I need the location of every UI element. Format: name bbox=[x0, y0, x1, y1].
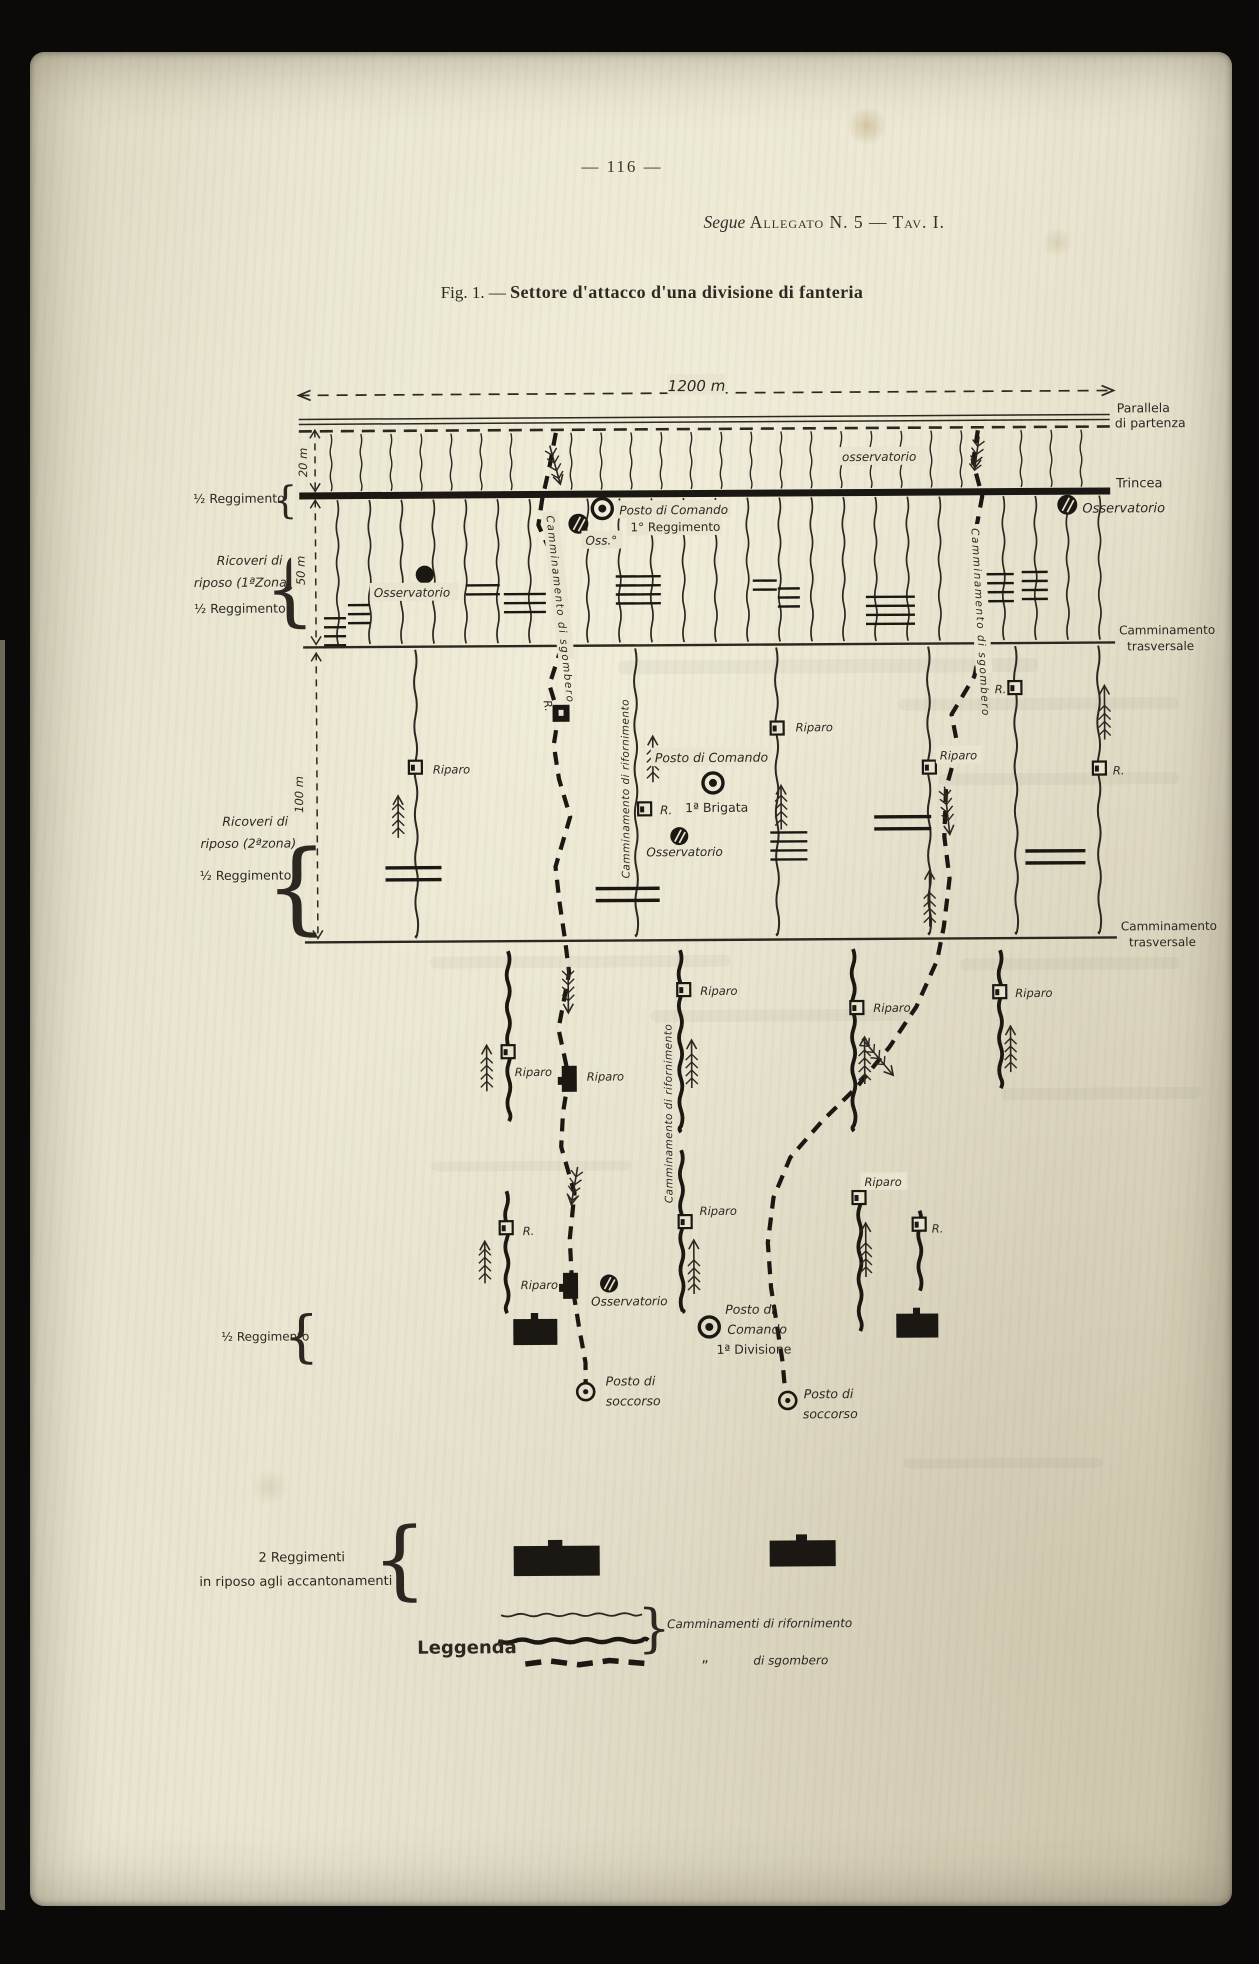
shelter-icon bbox=[1008, 681, 1021, 694]
barracks-icon bbox=[513, 1313, 557, 1345]
jump-off-sap-line bbox=[1080, 430, 1082, 487]
diagram-label: 2 Reggimenti bbox=[258, 1550, 345, 1566]
jump-off-sap-line bbox=[330, 434, 332, 491]
jump-off-sap-line bbox=[450, 434, 452, 491]
trincea-line bbox=[299, 491, 1110, 496]
svg-text:1° Reggimento: 1° Reggimento bbox=[630, 520, 720, 535]
supply-trench-line bbox=[505, 1191, 509, 1313]
shelter-icon-filled bbox=[558, 1066, 577, 1092]
communication-trench-line bbox=[874, 497, 877, 641]
direction-arrow bbox=[686, 1040, 698, 1088]
diagram-label: Parallela bbox=[1117, 400, 1170, 415]
jump-off-sap-line bbox=[480, 433, 482, 490]
diagram-label: di partenza bbox=[1115, 415, 1186, 430]
communication-trench-line bbox=[1098, 496, 1101, 640]
shelter-icon bbox=[923, 761, 936, 774]
svg-text:„: „ bbox=[701, 1650, 708, 1666]
jump-off-sap-line bbox=[810, 431, 812, 488]
diagram-label: 1ª Divisione bbox=[716, 1341, 791, 1356]
diagram-label: R. bbox=[995, 682, 1007, 696]
direction-arrow bbox=[1004, 1026, 1016, 1072]
svg-text:Riparo: Riparo bbox=[521, 1278, 558, 1292]
diagram-label: Riparo bbox=[936, 746, 983, 764]
svg-text:R.: R. bbox=[995, 682, 1007, 696]
svg-text:½ Reggimento: ½ Reggimento bbox=[200, 867, 292, 883]
svg-text:trasversale: trasversale bbox=[1127, 639, 1194, 653]
diagram-label: Oss.° bbox=[581, 530, 623, 548]
legend-thick-wavy-line bbox=[498, 1639, 648, 1643]
jump-off-sap-line bbox=[420, 434, 422, 491]
grouping-brace: { bbox=[372, 1510, 427, 1610]
jump-off-sap-line bbox=[960, 430, 962, 487]
jump-off-sap-line bbox=[750, 432, 752, 489]
svg-text:Ricoveri di: Ricoveri di bbox=[222, 814, 288, 829]
diagram-label: 1200 m bbox=[667, 374, 726, 395]
svg-text:Parallela: Parallela bbox=[1117, 400, 1170, 415]
communication-trench-line bbox=[414, 650, 418, 938]
diagram-label: R. bbox=[523, 1224, 535, 1238]
svg-text:1ª Brigata: 1ª Brigata bbox=[685, 800, 748, 815]
jump-off-sap-line bbox=[390, 434, 392, 491]
svg-text:Riparo: Riparo bbox=[700, 1204, 737, 1218]
supply-trench-line bbox=[858, 1191, 862, 1331]
svg-text:Osservatorio: Osservatorio bbox=[646, 845, 722, 859]
communication-trench-line bbox=[1034, 496, 1037, 640]
svg-text:Riparo: Riparo bbox=[587, 1069, 624, 1083]
supply-trench-line bbox=[679, 950, 683, 1132]
diagram-label: Riparo bbox=[700, 984, 737, 998]
diagram-label: R. bbox=[1113, 763, 1125, 777]
jump-off-sap-line bbox=[570, 433, 572, 490]
direction-arrow bbox=[1098, 685, 1110, 739]
communication-trench-line bbox=[496, 499, 499, 643]
svg-text:Oss.°: Oss.° bbox=[585, 533, 617, 547]
diagram-label: Riparo bbox=[873, 1001, 910, 1015]
diagram-label: 20 m bbox=[293, 445, 311, 479]
jump-off-sap-line bbox=[510, 433, 512, 490]
page-bleedthrough bbox=[431, 1160, 631, 1171]
svg-text:Trincea: Trincea bbox=[1115, 476, 1162, 491]
svg-text:Riparo: Riparo bbox=[515, 1065, 552, 1079]
svg-text:Camminamento: Camminamento bbox=[1121, 919, 1217, 934]
diagram-label: Riparo bbox=[860, 1172, 907, 1190]
supply-trench-line bbox=[680, 1150, 684, 1312]
diagram-label: Riparo bbox=[587, 1069, 624, 1083]
diagram-label: Riparo bbox=[515, 1065, 552, 1079]
command-post-icon bbox=[703, 773, 723, 793]
diagram-label: Riparo bbox=[1015, 986, 1052, 1000]
svg-text:Posto di Comando: Posto di Comando bbox=[619, 503, 728, 518]
jump-off-sap-line bbox=[1020, 430, 1022, 487]
diagram-label: Posto di bbox=[804, 1386, 854, 1401]
jump-off-sap-line bbox=[780, 431, 782, 488]
svg-text:½ Reggimento: ½ Reggimento bbox=[194, 601, 286, 617]
diagram-label: R. bbox=[660, 803, 672, 817]
aid-post-icon bbox=[577, 1383, 594, 1400]
command-post-icon bbox=[592, 499, 612, 519]
shelter-icon bbox=[850, 1001, 863, 1014]
diagram-label: in riposo agli accantonamenti bbox=[199, 1574, 392, 1590]
svg-text:Posto di: Posto di bbox=[804, 1386, 854, 1401]
diagram-content: {{{{{}1200 mParalleladi partenzaosservat… bbox=[192, 371, 1221, 1671]
svg-text:R.: R. bbox=[1113, 763, 1125, 777]
svg-text:Riparo: Riparo bbox=[940, 748, 977, 762]
diagram-label: R. bbox=[541, 699, 556, 712]
diagram-label: osservatorio bbox=[838, 447, 927, 466]
shelter-icon bbox=[679, 1215, 692, 1228]
diagram-label: Posto di Comando bbox=[651, 747, 771, 766]
diagram-label: di sgombero bbox=[753, 1653, 828, 1667]
communication-trench-line bbox=[1066, 496, 1069, 640]
svg-text:soccorso: soccorso bbox=[606, 1393, 661, 1408]
page-bleedthrough bbox=[1001, 1087, 1201, 1100]
shelter-icon bbox=[409, 761, 422, 774]
shelter-icon bbox=[500, 1221, 513, 1234]
svg-text:R.: R. bbox=[660, 803, 672, 817]
command-post-icon bbox=[699, 1317, 719, 1337]
svg-text:Camminamento di rifornimento: Camminamento di rifornimento bbox=[662, 1024, 675, 1204]
diagram-label: Posto di bbox=[606, 1373, 656, 1388]
direction-arrow bbox=[924, 871, 936, 927]
diagram-label: Camminamento di rifornimento bbox=[662, 1024, 675, 1204]
observatory-icon bbox=[1057, 495, 1077, 515]
diagram-label: Osservatorio bbox=[591, 1294, 667, 1308]
diagram-label: Osservatorio bbox=[1082, 501, 1165, 517]
aid-post-icon bbox=[779, 1392, 796, 1409]
svg-text:soccorso: soccorso bbox=[803, 1406, 858, 1421]
shelter-icon bbox=[852, 1191, 865, 1204]
jump-off-sap-line bbox=[690, 432, 692, 489]
page-bleedthrough bbox=[939, 772, 1179, 785]
diagram-label: Riparo bbox=[796, 720, 833, 734]
jump-off-sap-line bbox=[660, 432, 662, 489]
communication-trench-line bbox=[1002, 496, 1005, 640]
supply-trench-line bbox=[851, 949, 855, 1131]
diagram-label: Ricoveri di bbox=[217, 553, 283, 568]
diagram-label: Camminamento bbox=[1119, 623, 1215, 638]
diagram-label: Camminamento bbox=[1121, 919, 1217, 934]
camminamento-trasversale-line bbox=[305, 937, 1117, 942]
supply-trench-line bbox=[507, 951, 511, 1121]
jump-off-sap-line bbox=[630, 432, 632, 489]
svg-text:Posto di: Posto di bbox=[725, 1302, 775, 1317]
diagram-label: „ bbox=[701, 1650, 708, 1666]
diagram-label: soccorso bbox=[803, 1406, 858, 1421]
barracks-icon bbox=[514, 1540, 600, 1577]
shelter-icon bbox=[771, 721, 784, 734]
diagram-label: 1ª Brigata bbox=[685, 800, 748, 815]
observatory-icon bbox=[670, 827, 688, 845]
communication-trench-line bbox=[746, 498, 749, 642]
jump-off-sap-line bbox=[720, 432, 722, 489]
direction-arrow bbox=[479, 1241, 491, 1283]
diagram-label: Leggenda bbox=[417, 1637, 517, 1659]
shelter-icon-filled bbox=[559, 1273, 578, 1299]
svg-text:Riparo: Riparo bbox=[1015, 986, 1052, 1000]
svg-text:Osservatorio: Osservatorio bbox=[374, 586, 450, 600]
communication-trench-line bbox=[810, 497, 813, 641]
diagram-label: 50 m bbox=[291, 554, 309, 588]
communication-trench-line bbox=[400, 500, 403, 644]
diagram-label: Camminamento di sgombero bbox=[542, 511, 580, 705]
svg-text:½ Reggimento: ½ Reggimento bbox=[221, 1329, 309, 1344]
svg-text:Comando: Comando bbox=[727, 1321, 787, 1336]
diagram-label: Riparo bbox=[700, 1204, 737, 1218]
diagram-label: ½ Reggimento bbox=[221, 1329, 309, 1344]
direction-arrow bbox=[481, 1045, 493, 1091]
observatory-icon bbox=[416, 566, 434, 584]
camminamento-trasversale-line bbox=[303, 642, 1115, 647]
communication-trench-line bbox=[842, 497, 845, 641]
communication-trench-line bbox=[464, 499, 467, 643]
diagram-label: Camminamenti di rifornimento bbox=[667, 1616, 852, 1631]
jump-off-sap-line bbox=[600, 433, 602, 490]
page-bleedthrough bbox=[650, 1009, 910, 1023]
svg-text:1ª Divisione: 1ª Divisione bbox=[716, 1341, 791, 1356]
svg-text:½ Reggimento: ½ Reggimento bbox=[193, 491, 285, 507]
legend-dashed-line bbox=[525, 1660, 644, 1665]
supply-trench-line bbox=[999, 950, 1003, 1088]
parallela-di-partenza-line bbox=[299, 419, 1110, 424]
svg-text:Leggenda: Leggenda bbox=[417, 1637, 517, 1659]
page-bleedthrough bbox=[903, 1458, 1103, 1469]
direction-arrow bbox=[775, 785, 787, 829]
barracks-icon bbox=[896, 1308, 938, 1338]
page-bleedthrough bbox=[430, 955, 730, 969]
diagram-label: trasversale bbox=[1127, 639, 1194, 653]
diagram-label: Riparo bbox=[521, 1278, 558, 1292]
diagram-label: Camminamento di sgombero bbox=[967, 524, 995, 718]
svg-text:Camminamenti di rifornimento: Camminamenti di rifornimento bbox=[667, 1616, 852, 1631]
svg-text:Camminamento di rifornimento: Camminamento di rifornimento bbox=[619, 699, 632, 879]
communication-trench-line bbox=[634, 648, 638, 936]
barracks-icon bbox=[770, 1534, 836, 1566]
communication-trench-line bbox=[618, 498, 621, 642]
svg-text:R.: R. bbox=[541, 699, 556, 712]
svg-text:riposo (1ªZona): riposo (1ªZona) bbox=[194, 574, 292, 590]
diagram-label: ½ Reggimento bbox=[193, 491, 285, 507]
direction-arrow bbox=[688, 1240, 700, 1294]
observatory-icon bbox=[600, 1275, 618, 1293]
diagram-label: Osservatorio bbox=[370, 582, 459, 601]
communication-trench-line bbox=[778, 498, 781, 642]
shelter-icon bbox=[993, 985, 1006, 998]
svg-text:1200 m: 1200 m bbox=[668, 377, 726, 395]
diagram-label: Riparo bbox=[433, 762, 470, 776]
diagram-label: Posto di Comando bbox=[615, 500, 731, 519]
page-bleedthrough bbox=[898, 697, 1178, 711]
shelter-icon bbox=[1093, 762, 1106, 775]
communication-trench-line bbox=[336, 500, 339, 644]
shelter-icon bbox=[677, 983, 690, 996]
diagram-label: soccorso bbox=[606, 1393, 661, 1408]
shelter-icon bbox=[913, 1218, 926, 1231]
svg-text:riposo (2ªzona): riposo (2ªzona) bbox=[200, 835, 296, 851]
svg-text:Riparo: Riparo bbox=[864, 1175, 901, 1189]
shelter-icon bbox=[638, 802, 651, 815]
attack-sector-diagram: {{{{{}1200 mParalleladi partenzaosservat… bbox=[0, 0, 1259, 1964]
svg-text:Posto di Comando: Posto di Comando bbox=[655, 750, 769, 766]
diagram-label: R. bbox=[932, 1222, 944, 1236]
diagram-label: Trincea bbox=[1115, 476, 1162, 491]
grouping-brace: } bbox=[637, 1599, 670, 1659]
svg-text:osservatorio: osservatorio bbox=[842, 450, 916, 464]
svg-text:Riparo: Riparo bbox=[700, 984, 737, 998]
shelter-icon bbox=[502, 1045, 515, 1058]
diagram-label: Comando bbox=[727, 1321, 787, 1336]
diagram-label: 1° Reggimento bbox=[626, 517, 721, 536]
communication-trench-line bbox=[1097, 646, 1101, 934]
svg-text:di partenza: di partenza bbox=[1115, 415, 1186, 430]
svg-text:20 m: 20 m bbox=[296, 448, 310, 478]
scanned-book-page: — 116 — Segue Allegato N. 5 — Tav. I. Fi… bbox=[0, 0, 1259, 1964]
svg-text:Osservatorio: Osservatorio bbox=[591, 1294, 667, 1308]
svg-text:R.: R. bbox=[523, 1224, 535, 1238]
svg-text:Riparo: Riparo bbox=[433, 762, 470, 776]
svg-text:Riparo: Riparo bbox=[873, 1001, 910, 1015]
diagram-label: Posto di bbox=[725, 1302, 775, 1317]
jump-off-sap-line bbox=[360, 434, 362, 491]
svg-text:trasversale: trasversale bbox=[1129, 935, 1196, 949]
svg-text:50 m: 50 m bbox=[294, 556, 308, 586]
svg-text:Posto di: Posto di bbox=[606, 1373, 656, 1388]
diagram-label: ½ Reggimento bbox=[200, 867, 292, 883]
jump-off-sap-line bbox=[930, 431, 932, 488]
parallela-dashed-line bbox=[299, 426, 1110, 431]
svg-text:2 Reggimenti: 2 Reggimenti bbox=[258, 1550, 345, 1566]
diagram-label: Camminamento di rifornimento bbox=[619, 699, 632, 879]
svg-text:Riparo: Riparo bbox=[796, 720, 833, 734]
svg-text:Ricoveri di: Ricoveri di bbox=[217, 553, 283, 568]
communication-trench-line bbox=[906, 497, 909, 641]
diagram-label: ½ Reggimento bbox=[194, 601, 286, 617]
communication-trench-line bbox=[528, 499, 531, 643]
svg-text:Camminamento: Camminamento bbox=[1119, 623, 1215, 638]
direction-arrow bbox=[392, 796, 404, 838]
svg-text:100 m: 100 m bbox=[292, 776, 306, 813]
svg-text:Osservatorio: Osservatorio bbox=[1082, 501, 1165, 517]
svg-text:R.: R. bbox=[932, 1222, 944, 1236]
communication-trench-line bbox=[938, 497, 941, 641]
diagram-label: riposo (1ªZona) bbox=[194, 574, 292, 590]
jump-off-sap-line bbox=[1050, 430, 1052, 487]
parallela-di-partenza-line bbox=[299, 414, 1110, 419]
legend-thin-wavy-line bbox=[501, 1613, 642, 1616]
diagram-label: trasversale bbox=[1129, 935, 1196, 949]
svg-text:in riposo agli accantonamenti: in riposo agli accantonamenti bbox=[199, 1574, 392, 1590]
diagram-label: Ricoveri di bbox=[222, 814, 288, 829]
diagram-label: riposo (2ªzona) bbox=[200, 835, 296, 851]
diagram-label: 100 m bbox=[289, 774, 307, 814]
diagram-label: Osservatorio bbox=[646, 845, 722, 859]
page-bleedthrough bbox=[960, 957, 1180, 970]
svg-text:di sgombero: di sgombero bbox=[753, 1653, 828, 1667]
